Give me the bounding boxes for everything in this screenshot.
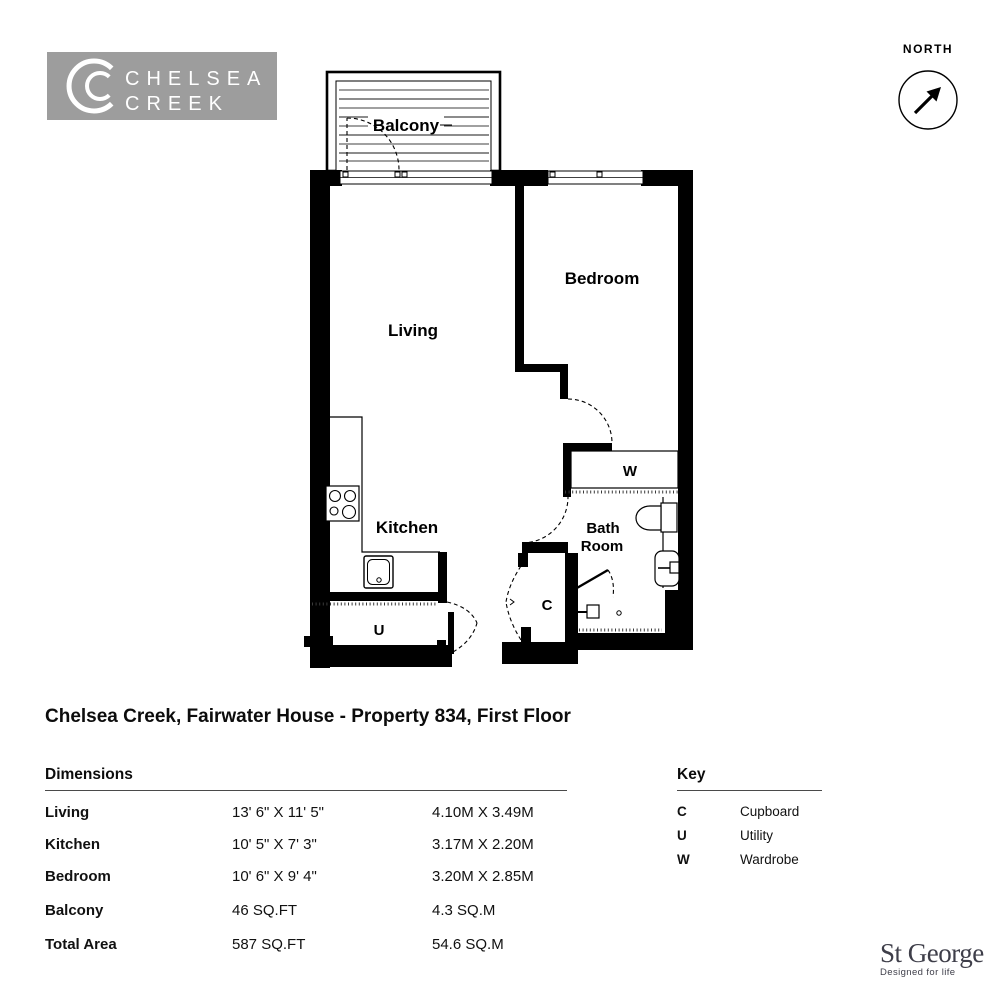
dim-metric: 3.20M X 2.85M	[432, 868, 534, 885]
dim-imperial: 13' 6" X 11' 5"	[232, 804, 324, 821]
sink-icon	[364, 556, 393, 588]
dim-imperial: 10' 6" X 9' 4"	[232, 868, 317, 885]
room-label-bathroom-line1: Bath	[586, 520, 619, 537]
cupboard-door-arc-bottom	[506, 602, 521, 640]
room-label-kitchen: Kitchen	[376, 518, 438, 537]
key-label: Cupboard	[740, 804, 799, 819]
key-row-cupboard: C Cupboard	[677, 804, 897, 822]
dim-label: Kitchen	[45, 836, 100, 853]
basin-icon	[655, 551, 679, 586]
dim-label: Bedroom	[45, 868, 111, 885]
key-label: Utility	[740, 828, 773, 843]
dimension-row-bedroom: Bedroom 10' 6" X 9' 4" 3.20M X 2.85M	[45, 868, 605, 888]
north-label: NORTH	[878, 42, 978, 56]
key-symbol: W	[677, 852, 690, 867]
dim-metric: 3.17M X 2.20M	[432, 836, 534, 853]
living-window	[340, 171, 492, 184]
cupboard-door-arc-top	[506, 566, 521, 602]
hob-icon	[326, 486, 359, 521]
room-label-utility: U	[374, 622, 385, 639]
key-label: Wardrobe	[740, 852, 799, 867]
dimensions-heading: Dimensions	[45, 766, 567, 791]
room-label-cupboard: C	[542, 597, 553, 614]
room-label-bathroom-line2: Room	[581, 538, 624, 555]
room-label-bedroom: Bedroom	[565, 269, 640, 288]
dimension-row-kitchen: Kitchen 10' 5" X 7' 3" 3.17M X 2.20M	[45, 836, 605, 856]
entry-door-leaf	[448, 612, 454, 654]
dim-imperial: 46 SQ.FT	[232, 902, 297, 919]
bathroom-door-arc	[522, 497, 568, 543]
room-label-balcony: Balcony	[373, 116, 440, 135]
chelsea-creek-logo: CHELSEA CREEK	[47, 52, 277, 120]
room-label-wardrobe: W	[623, 463, 638, 480]
dim-label: Balcony	[45, 902, 103, 919]
bedroom-window	[548, 171, 643, 184]
dimension-row-balcony: Balcony 46 SQ.FT 4.3 SQ.M	[45, 902, 605, 922]
st-george-brand: St George	[880, 940, 995, 967]
key-heading: Key	[677, 766, 822, 791]
north-indicator: NORTH	[878, 42, 978, 143]
dim-metric: 4.3 SQ.M	[432, 902, 495, 919]
dim-imperial: 10' 5" X 7' 3"	[232, 836, 317, 853]
bedroom-door-arc	[568, 399, 612, 443]
entry-door-arc-2	[453, 623, 477, 652]
toilet-icon	[636, 503, 677, 532]
key-row-utility: U Utility	[677, 828, 897, 846]
floorplan-page: CHELSEA CREEK NORTH	[0, 0, 1000, 1000]
logo-word-creek: CREEK	[125, 93, 229, 115]
key-symbol: U	[677, 828, 687, 843]
logo-word-chelsea: CHELSEA	[125, 68, 267, 90]
page-title: Chelsea Creek, Fairwater House - Propert…	[45, 706, 805, 728]
dim-metric: 4.10M X 3.49M	[432, 804, 534, 821]
room-label-living: Living	[388, 321, 438, 340]
st-george-tagline: Designed for life	[880, 967, 995, 978]
st-george-logo: St George Designed for life	[880, 940, 995, 978]
interior-walls	[310, 186, 612, 660]
dim-label: Living	[45, 804, 89, 821]
dimension-row-living: Living 13' 6" X 11' 5" 4.10M X 3.49M	[45, 804, 605, 824]
dim-label: Total Area	[45, 936, 117, 953]
dim-imperial: 587 SQ.FT	[232, 936, 305, 953]
key-symbol: C	[677, 804, 687, 819]
floor-plan: Balcony Living Bedroom Kitchen Bath Room…	[295, 55, 705, 690]
dimension-row-total-area: Total Area 587 SQ.FT 54.6 SQ.M	[45, 936, 605, 956]
key-row-wardrobe: W Wardrobe	[677, 852, 897, 870]
north-arrow-icon	[890, 62, 966, 138]
dim-metric: 54.6 SQ.M	[432, 936, 504, 953]
